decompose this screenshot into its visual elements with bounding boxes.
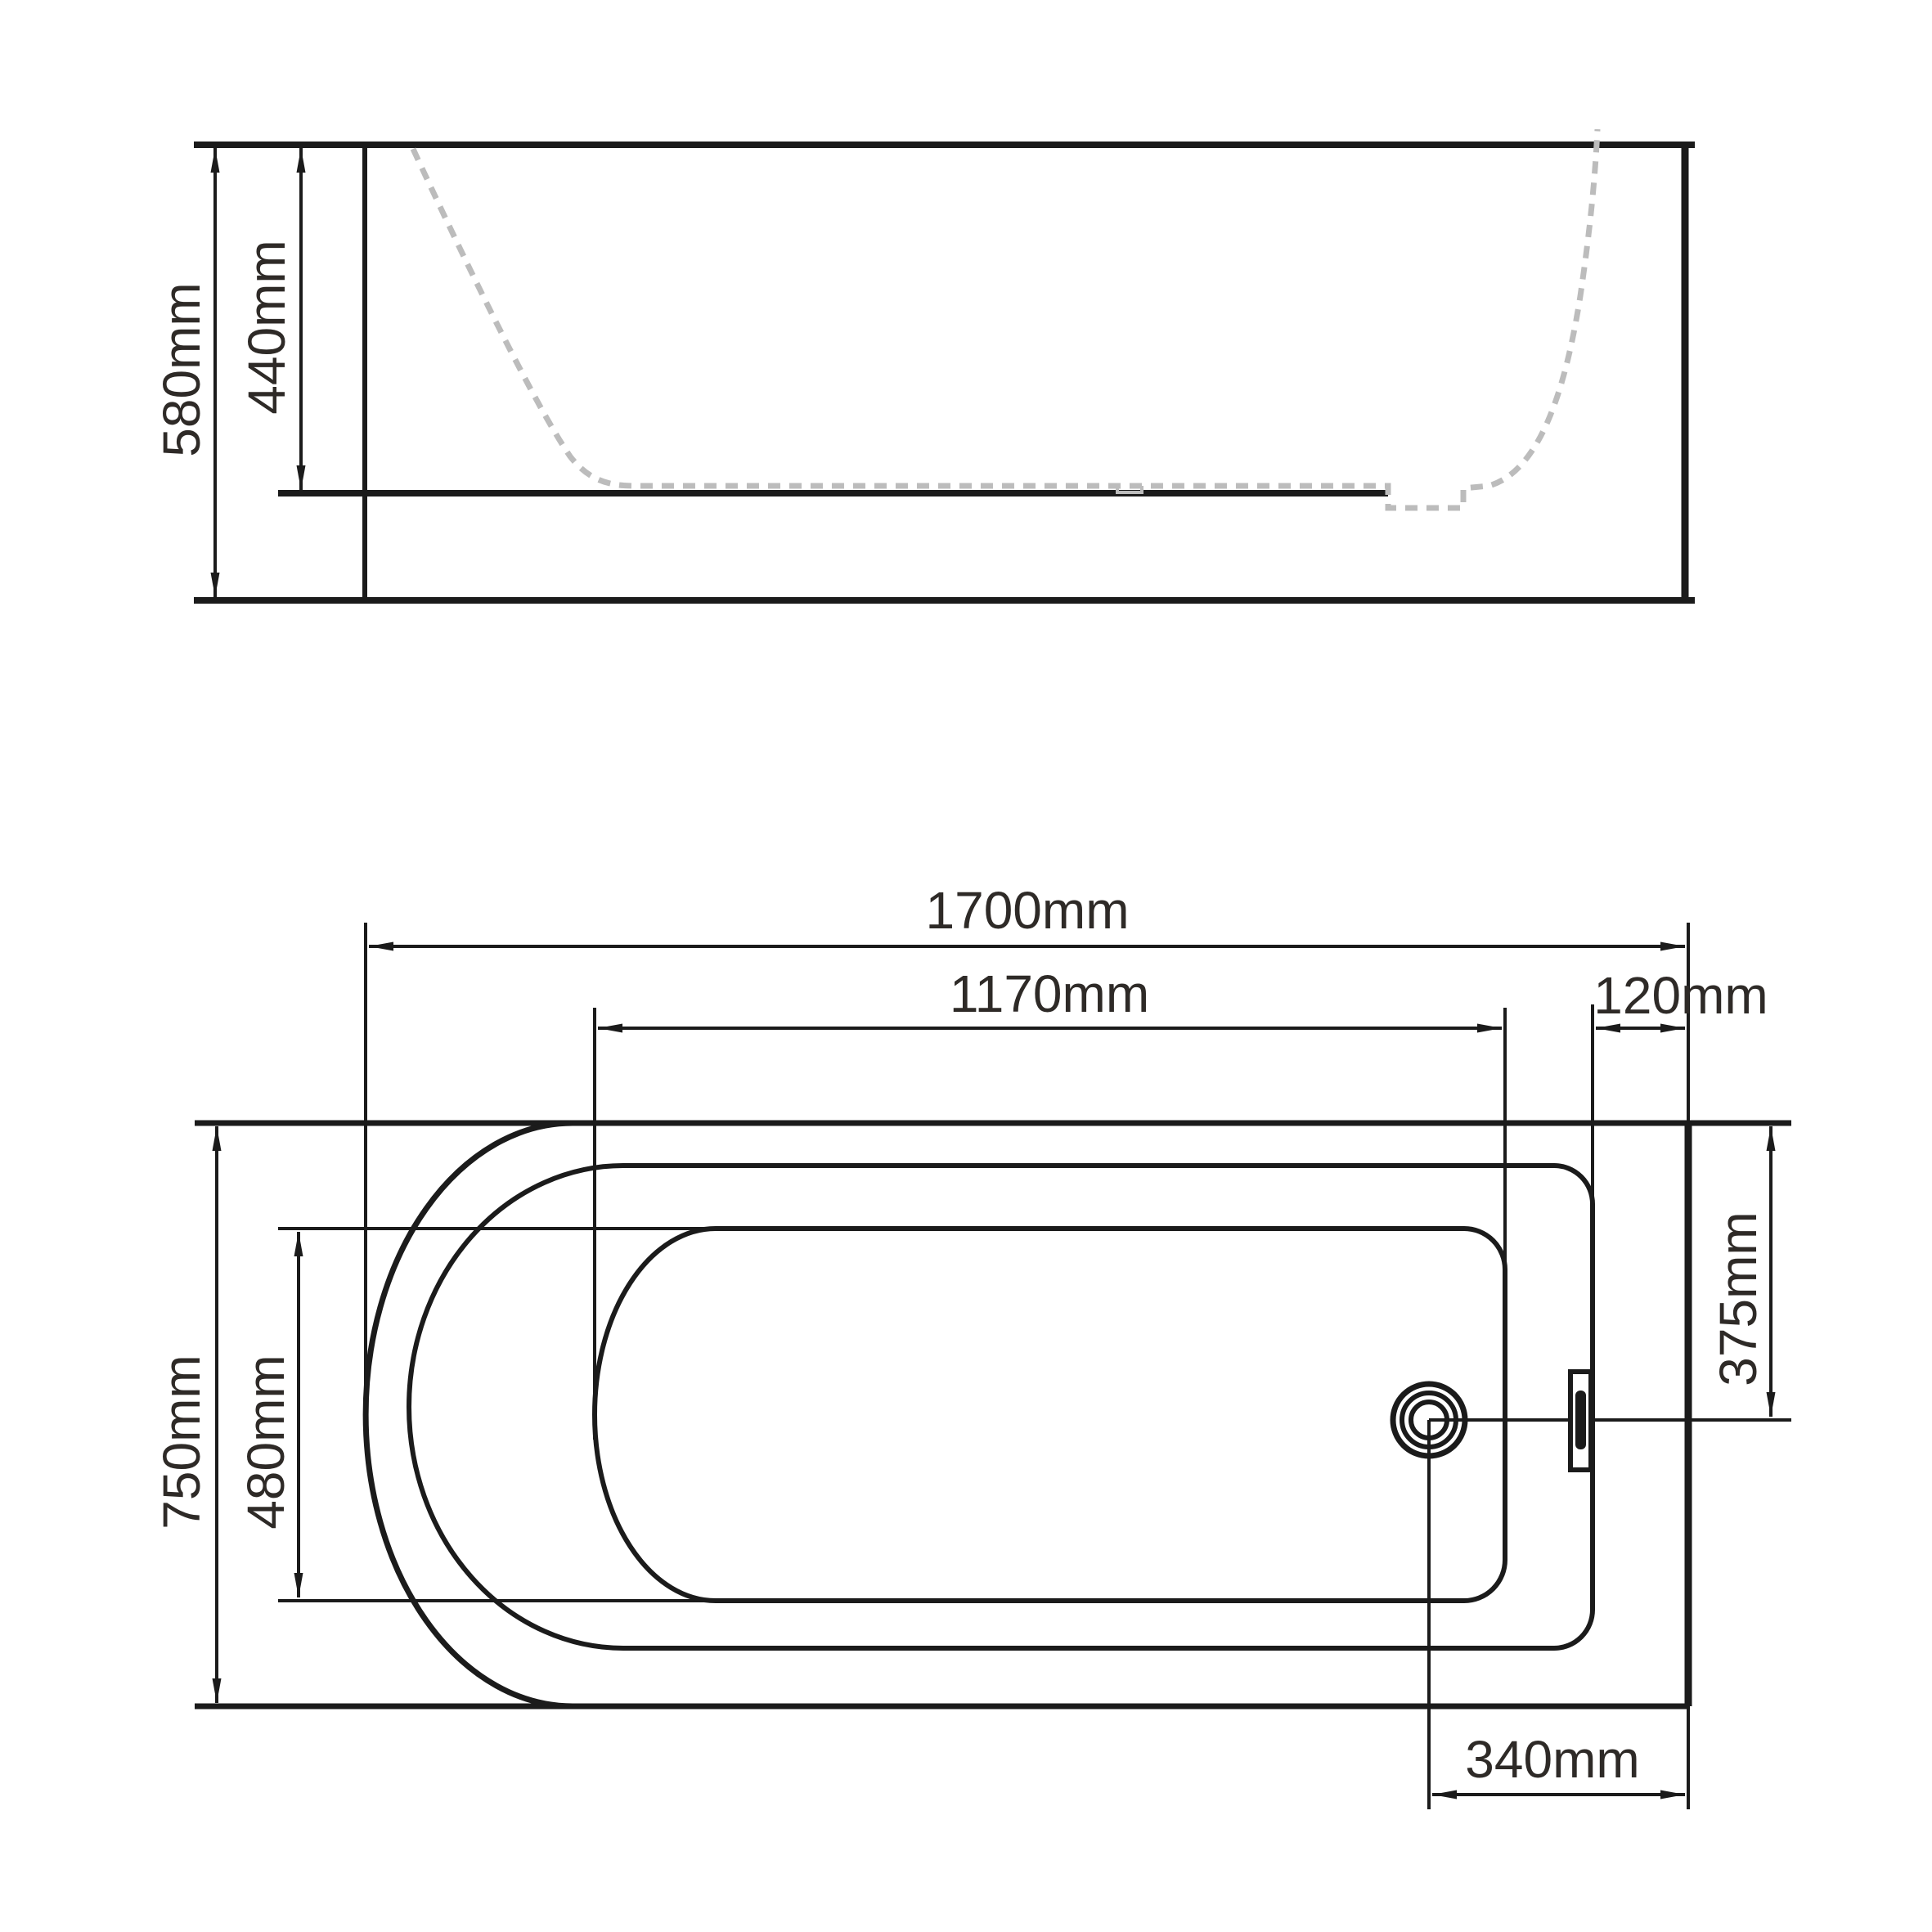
side-interior-profile-dashed [413, 129, 1597, 508]
overflow-fitting [1570, 1372, 1591, 1470]
dim-label-internal-width: 480mm [236, 1355, 295, 1529]
dim-label-internal-length: 1170mm [950, 964, 1149, 1023]
plan-view: 1700mm 1170mm 120mm 750mm 480mm 375mm [152, 881, 1791, 1809]
side-view: 580mm 440mm [152, 129, 1695, 600]
dimension-overall-height: 580mm [152, 148, 215, 597]
dimension-internal-width: 480mm [236, 1232, 299, 1597]
dim-label-rim-width: 120mm [1593, 966, 1768, 1025]
dim-label-internal-depth-text: 440mm [237, 240, 296, 414]
dimension-overall-length: 1700mm [369, 881, 1685, 946]
dim-label-drain-offset-top: 375mm [1709, 1211, 1768, 1386]
bathtub-dimension-drawing: 580mm 440mm [0, 0, 1932, 1932]
dimension-rim-width: 120mm [1593, 966, 1768, 1028]
dim-label-overall-height: 580mm [152, 282, 211, 456]
dim-label-overall-width: 750mm [152, 1355, 211, 1529]
dimension-overall-width: 750mm [152, 1126, 217, 1703]
dim-label-overall-length: 1700mm [926, 881, 1130, 940]
overflow-slot [1575, 1391, 1586, 1449]
dimension-internal-length: 1170mm [598, 964, 1502, 1028]
plan-left-end-arc [366, 1123, 573, 1706]
plan-basin-outline [595, 1229, 1505, 1601]
dimension-internal-depth: 440mm [237, 148, 301, 490]
dimension-drain-offset-end: 340mm [1432, 1730, 1685, 1795]
drawing-canvas: 580mm 440mm [0, 0, 1932, 1932]
dim-label-drain-offset-end: 340mm [1465, 1730, 1639, 1789]
dimension-drain-offset-top: 375mm [1709, 1126, 1771, 1417]
